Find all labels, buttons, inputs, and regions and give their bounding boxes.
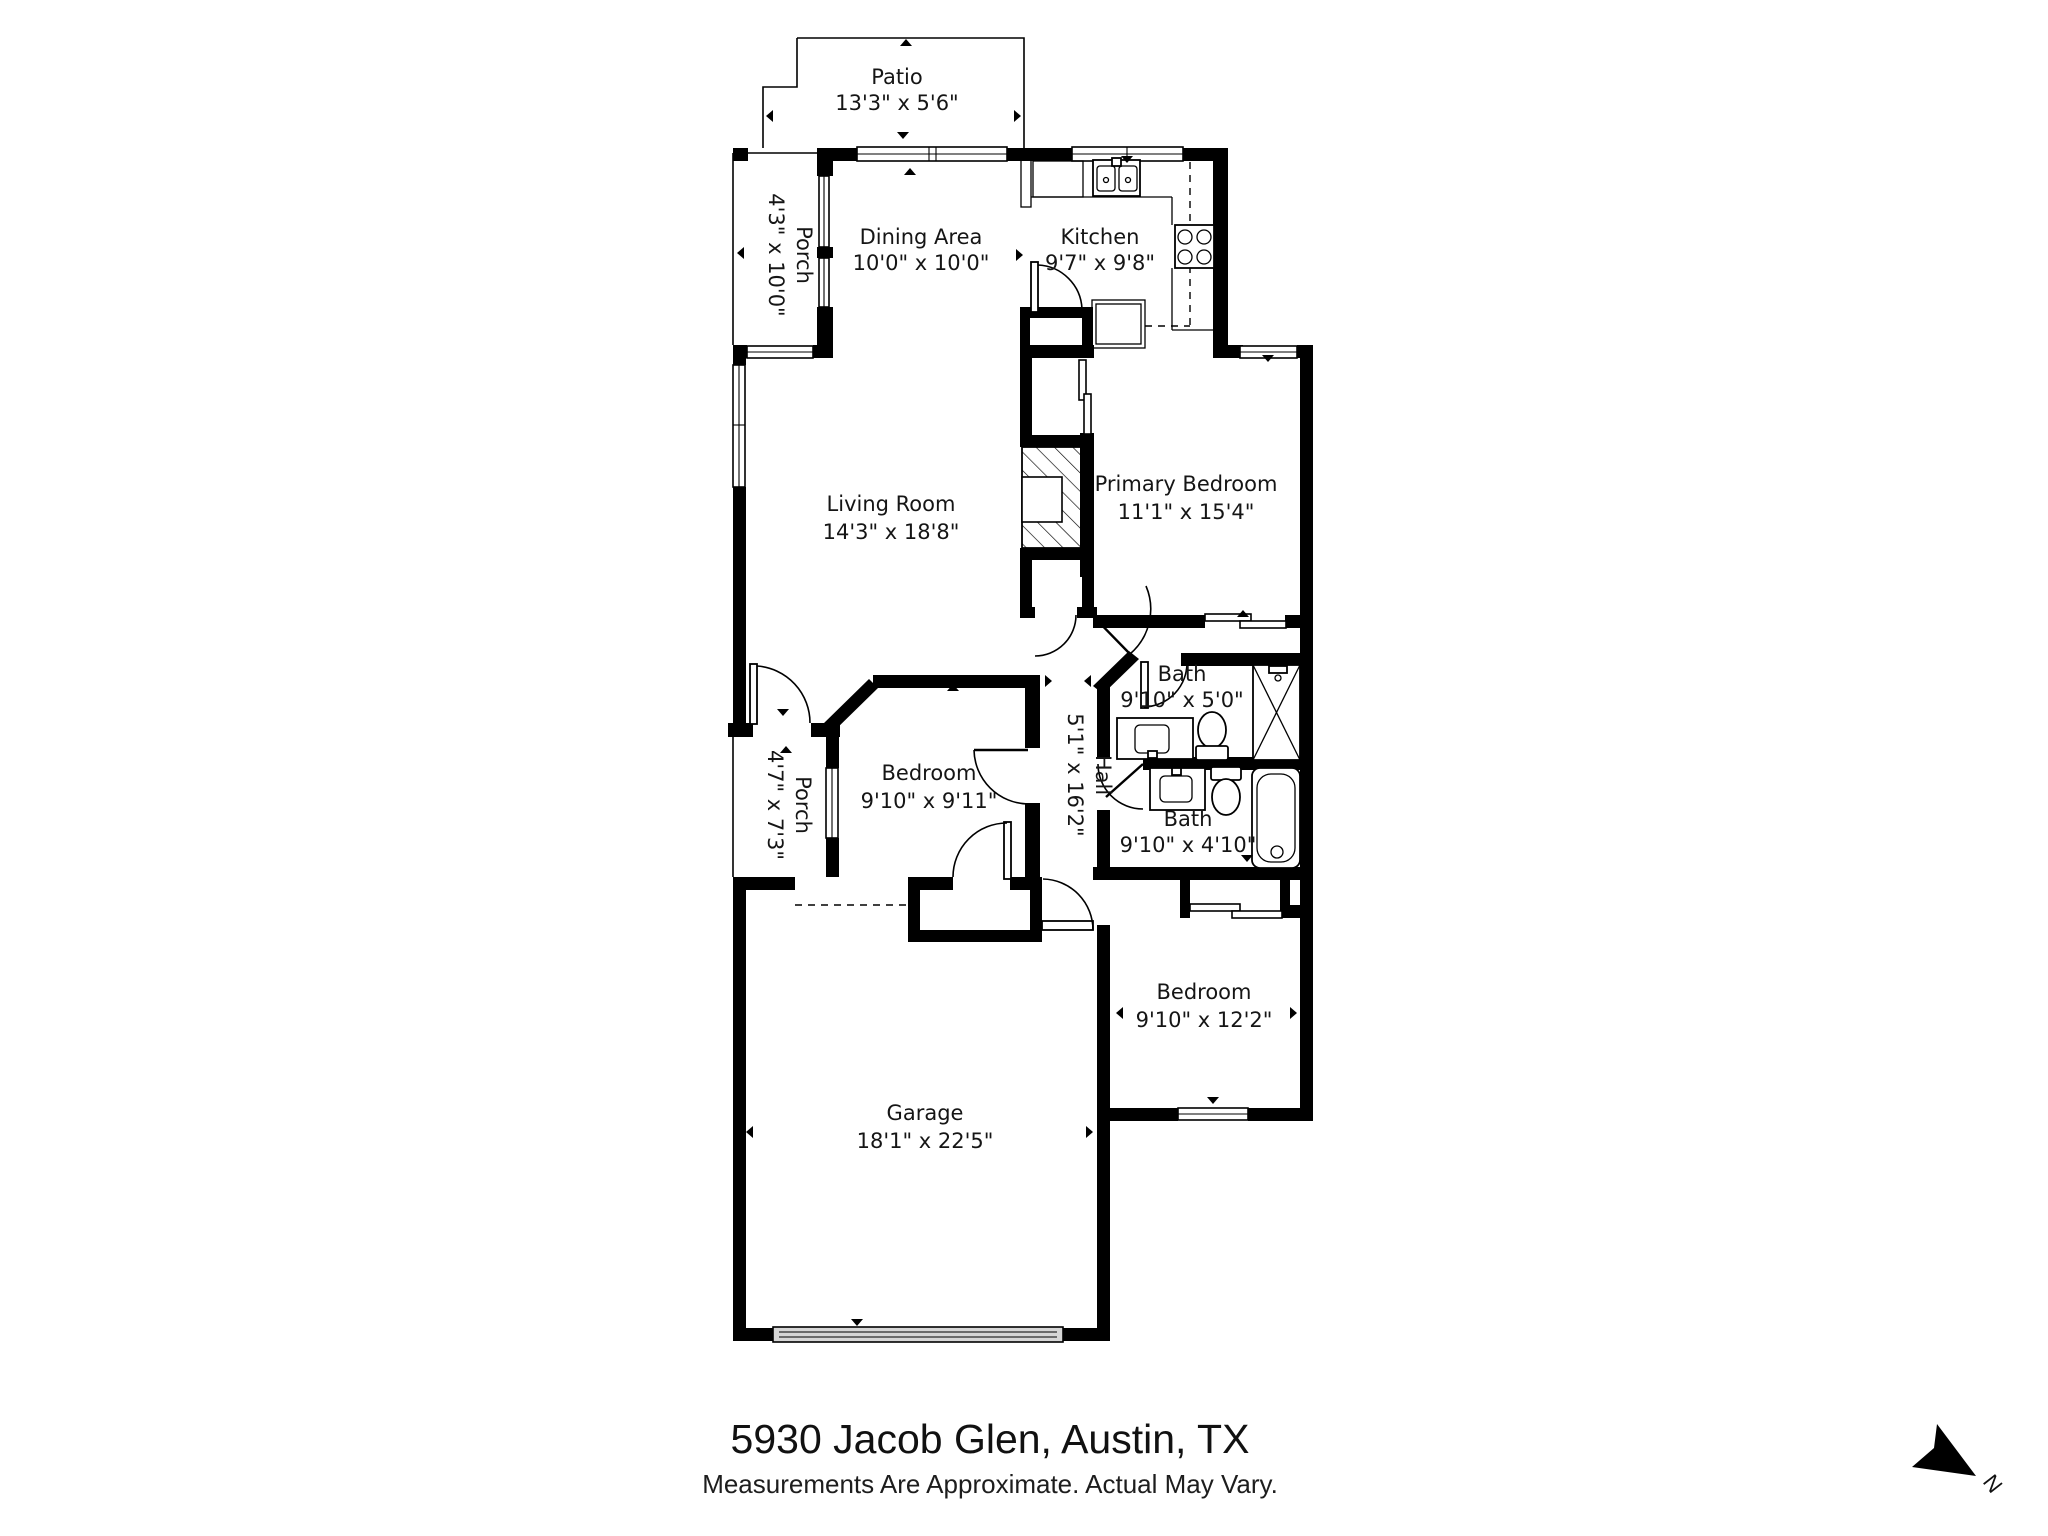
room-label-bath-upper: Bath 9'10" x 5'0" xyxy=(1120,662,1243,712)
svg-text:Living Room: Living Room xyxy=(827,492,956,516)
bedroom-rear-window xyxy=(1178,1108,1248,1120)
room-label-patio: Patio 13'3" x 5'6" xyxy=(835,65,958,115)
svg-text:Bedroom: Bedroom xyxy=(1157,980,1252,1004)
room-label-garage: Garage 18'1" x 22'5" xyxy=(857,1101,994,1153)
walls xyxy=(728,148,1313,1341)
svg-text:13'3" x 5'6": 13'3" x 5'6" xyxy=(835,91,958,115)
svg-text:11'1" x 15'4": 11'1" x 15'4" xyxy=(1118,500,1255,524)
hall-closet-door xyxy=(1035,615,1076,656)
floorplan-svg: Patio 13'3" x 5'6" Porch 4'3" x 10'0" Di… xyxy=(0,0,2048,1536)
north-label: N xyxy=(1978,1470,2007,1498)
dining-west-windows xyxy=(819,176,829,307)
svg-text:4'3" x 10'0": 4'3" x 10'0" xyxy=(764,193,788,316)
stove-icon xyxy=(1175,225,1214,268)
svg-text:Kitchen: Kitchen xyxy=(1061,225,1140,249)
bedroom-middle-south-door xyxy=(953,822,1011,879)
svg-text:5'1" x 16'2": 5'1" x 16'2" xyxy=(1063,713,1087,836)
toilet-icon xyxy=(1211,767,1241,815)
porch-bedroom-window xyxy=(826,768,838,838)
shower-icon xyxy=(1253,665,1300,760)
windows xyxy=(733,147,1297,1120)
fireplace xyxy=(1022,447,1082,548)
disclaimer-text: Measurements Are Approximate. Actual May… xyxy=(702,1469,1278,1499)
patio-door-window xyxy=(857,147,1007,161)
svg-text:Dining Area: Dining Area xyxy=(860,225,983,249)
svg-text:Bedroom: Bedroom xyxy=(882,761,977,785)
svg-text:18'1" x 22'5": 18'1" x 22'5" xyxy=(857,1129,994,1153)
svg-text:Porch: Porch xyxy=(791,776,815,834)
room-label-bedroom-rear: Bedroom 9'10" x 12'2" xyxy=(1136,980,1273,1032)
floorplan-page: Patio 13'3" x 5'6" Porch 4'3" x 10'0" Di… xyxy=(0,0,2048,1536)
room-label-porch-upper: Porch 4'3" x 10'0" xyxy=(764,193,816,316)
bathtub-icon xyxy=(1252,768,1300,868)
bedroom-rear-door xyxy=(1042,879,1093,930)
vanity-sink-icon xyxy=(1117,718,1193,759)
svg-text:9'7" x 9'8": 9'7" x 9'8" xyxy=(1045,251,1155,275)
svg-text:9'10" x 4'10": 9'10" x 4'10" xyxy=(1120,833,1257,857)
svg-text:Garage: Garage xyxy=(887,1101,964,1125)
porch-living-window xyxy=(747,346,813,358)
room-label-bath-lower: Bath 9'10" x 4'10" xyxy=(1120,807,1257,857)
svg-text:Bath: Bath xyxy=(1158,662,1207,686)
toilet-icon xyxy=(1196,712,1228,760)
room-label-primary-bedroom: Primary Bedroom 11'1" x 15'4" xyxy=(1095,472,1278,524)
front-door xyxy=(750,664,810,724)
svg-text:Patio: Patio xyxy=(871,65,923,89)
svg-text:Hall: Hall xyxy=(1091,755,1115,795)
room-label-porch-front: Porch 4'7" x 7'3" xyxy=(763,750,815,860)
svg-text:Bath: Bath xyxy=(1164,807,1213,831)
north-arrow-icon xyxy=(1912,1424,1976,1476)
room-label-dining: Dining Area 10'0" x 10'0" xyxy=(853,225,990,275)
svg-text:Primary Bedroom: Primary Bedroom xyxy=(1095,472,1278,496)
address-title: 5930 Jacob Glen, Austin, TX xyxy=(731,1416,1250,1462)
living-west-window xyxy=(733,365,745,487)
room-label-kitchen: Kitchen 9'7" x 9'8" xyxy=(1045,225,1155,275)
garage-door xyxy=(773,1327,1063,1342)
svg-text:Porch: Porch xyxy=(792,226,816,284)
svg-text:9'10" x 5'0": 9'10" x 5'0" xyxy=(1120,688,1243,712)
kitchen-sink-icon xyxy=(1093,158,1140,196)
svg-text:9'10" x 9'11": 9'10" x 9'11" xyxy=(861,789,998,813)
svg-text:14'3" x 18'8": 14'3" x 18'8" xyxy=(823,520,960,544)
svg-text:10'0" x 10'0": 10'0" x 10'0" xyxy=(853,251,990,275)
compass: N xyxy=(1912,1424,2008,1498)
svg-text:4'7" x 7'3": 4'7" x 7'3" xyxy=(763,750,787,860)
vanity-sink-icon xyxy=(1150,768,1205,810)
room-label-living: Living Room 14'3" x 18'8" xyxy=(823,492,960,544)
svg-text:9'10" x 12'2": 9'10" x 12'2" xyxy=(1136,1008,1273,1032)
